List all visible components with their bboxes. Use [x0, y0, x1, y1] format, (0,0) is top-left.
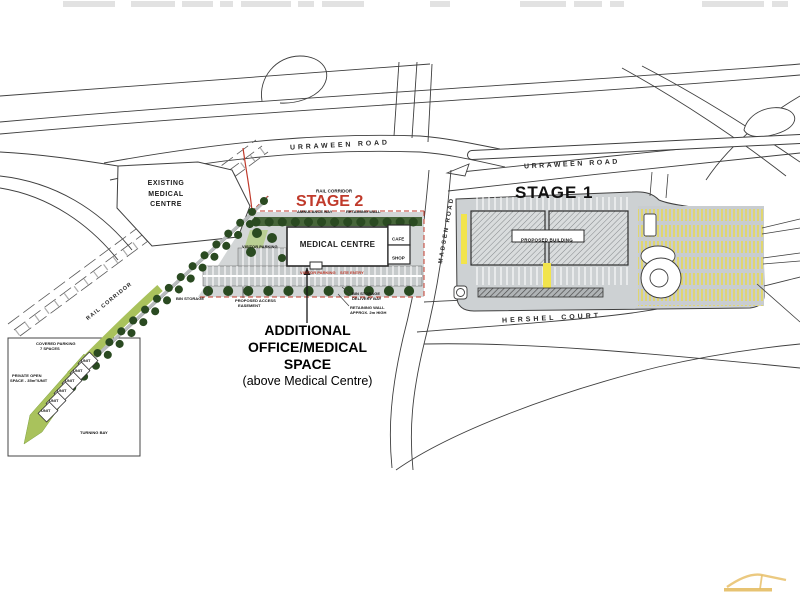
urraween-road-east — [447, 137, 800, 191]
retaining-wall2-label-2: APPROX. 2m HIGH — [350, 311, 386, 315]
existing-medical-centre-label: EXISTING MEDICAL CENTRE — [136, 179, 196, 211]
open-space-label-2: SPACE - 35m²/UNIT — [10, 379, 47, 383]
unit-label-2: UNIT — [73, 369, 82, 373]
yellow-highlight-left — [461, 214, 467, 264]
shop-label: SHOP — [392, 251, 418, 267]
access-easement-label-1: PROPOSED ACCESS — [235, 299, 276, 303]
turning-bay-label: TURNING BAY — [80, 431, 108, 435]
bin-delivery-label-2: DELIVERY BAY — [352, 297, 381, 301]
retaining-wall-label: RETAINING WALL — [346, 210, 381, 214]
proposed-building-label: PROPOSED BUILDING — [521, 233, 625, 249]
medical-centre-label: MEDICAL CENTRE — [287, 241, 388, 249]
unit-label-6: UNIT — [41, 409, 50, 413]
stage2-title: STAGE 2 — [296, 194, 363, 210]
ambulance-bay-label: AMBULANCE BAY — [297, 210, 332, 214]
bin-storage-label: BIN STORAGE — [176, 297, 204, 301]
yellow-highlight-bottom — [543, 263, 551, 290]
visitor-parking-label: VISITOR PARKING — [242, 245, 278, 249]
entry-right-label: SITE ENTRY — [340, 271, 364, 275]
covered-parking-label-1: COVERED PARKING — [36, 342, 76, 346]
agency-logo — [724, 575, 786, 592]
plan-drawing — [0, 0, 800, 600]
open-space-label-1: PRIVATE OPEN — [12, 374, 42, 378]
additional-space-note: ADDITIONAL OFFICE/MEDICAL SPACE (above M… — [235, 322, 380, 389]
stage1-title: STAGE 1 — [515, 184, 593, 201]
entry-left-label: VISITOR PARKING — [300, 271, 336, 275]
unit-label-4: UNIT — [57, 389, 66, 393]
bin-delivery-label-1: BIN STORAGE — [352, 292, 380, 296]
unit-label-1: UNIT — [81, 359, 90, 363]
access-easement-label-2: EASEMENT — [238, 304, 261, 308]
covered-parking-label-2: 7 SPACES — [40, 347, 60, 351]
unit-label-5: UNIT — [49, 399, 58, 403]
unit-label-3: UNIT — [65, 379, 74, 383]
stage1-parcel — [454, 172, 800, 322]
retaining-wall2-label-1: RETAINING WALL — [350, 306, 385, 310]
cafe-label: CAFE — [392, 232, 417, 248]
site-plan: URRAWEEN ROAD URRAWEEN ROAD MADSEN ROAD … — [0, 0, 800, 600]
